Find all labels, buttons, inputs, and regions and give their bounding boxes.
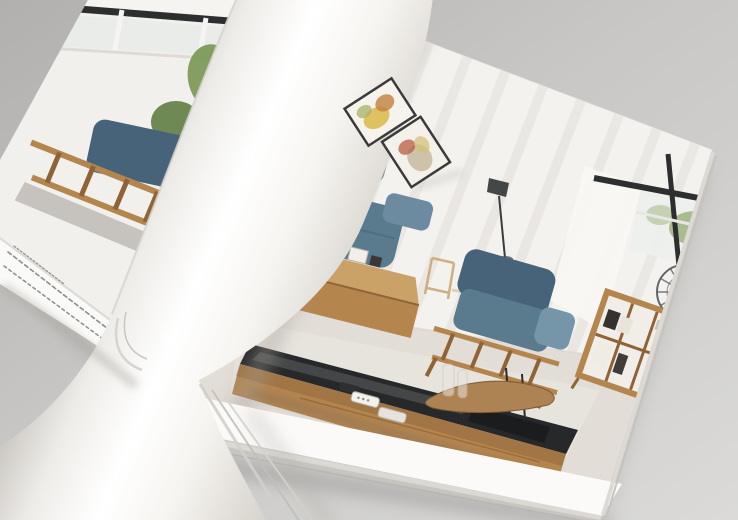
glass-candleholder [443,364,454,396]
catalog-photograph [0,0,738,520]
